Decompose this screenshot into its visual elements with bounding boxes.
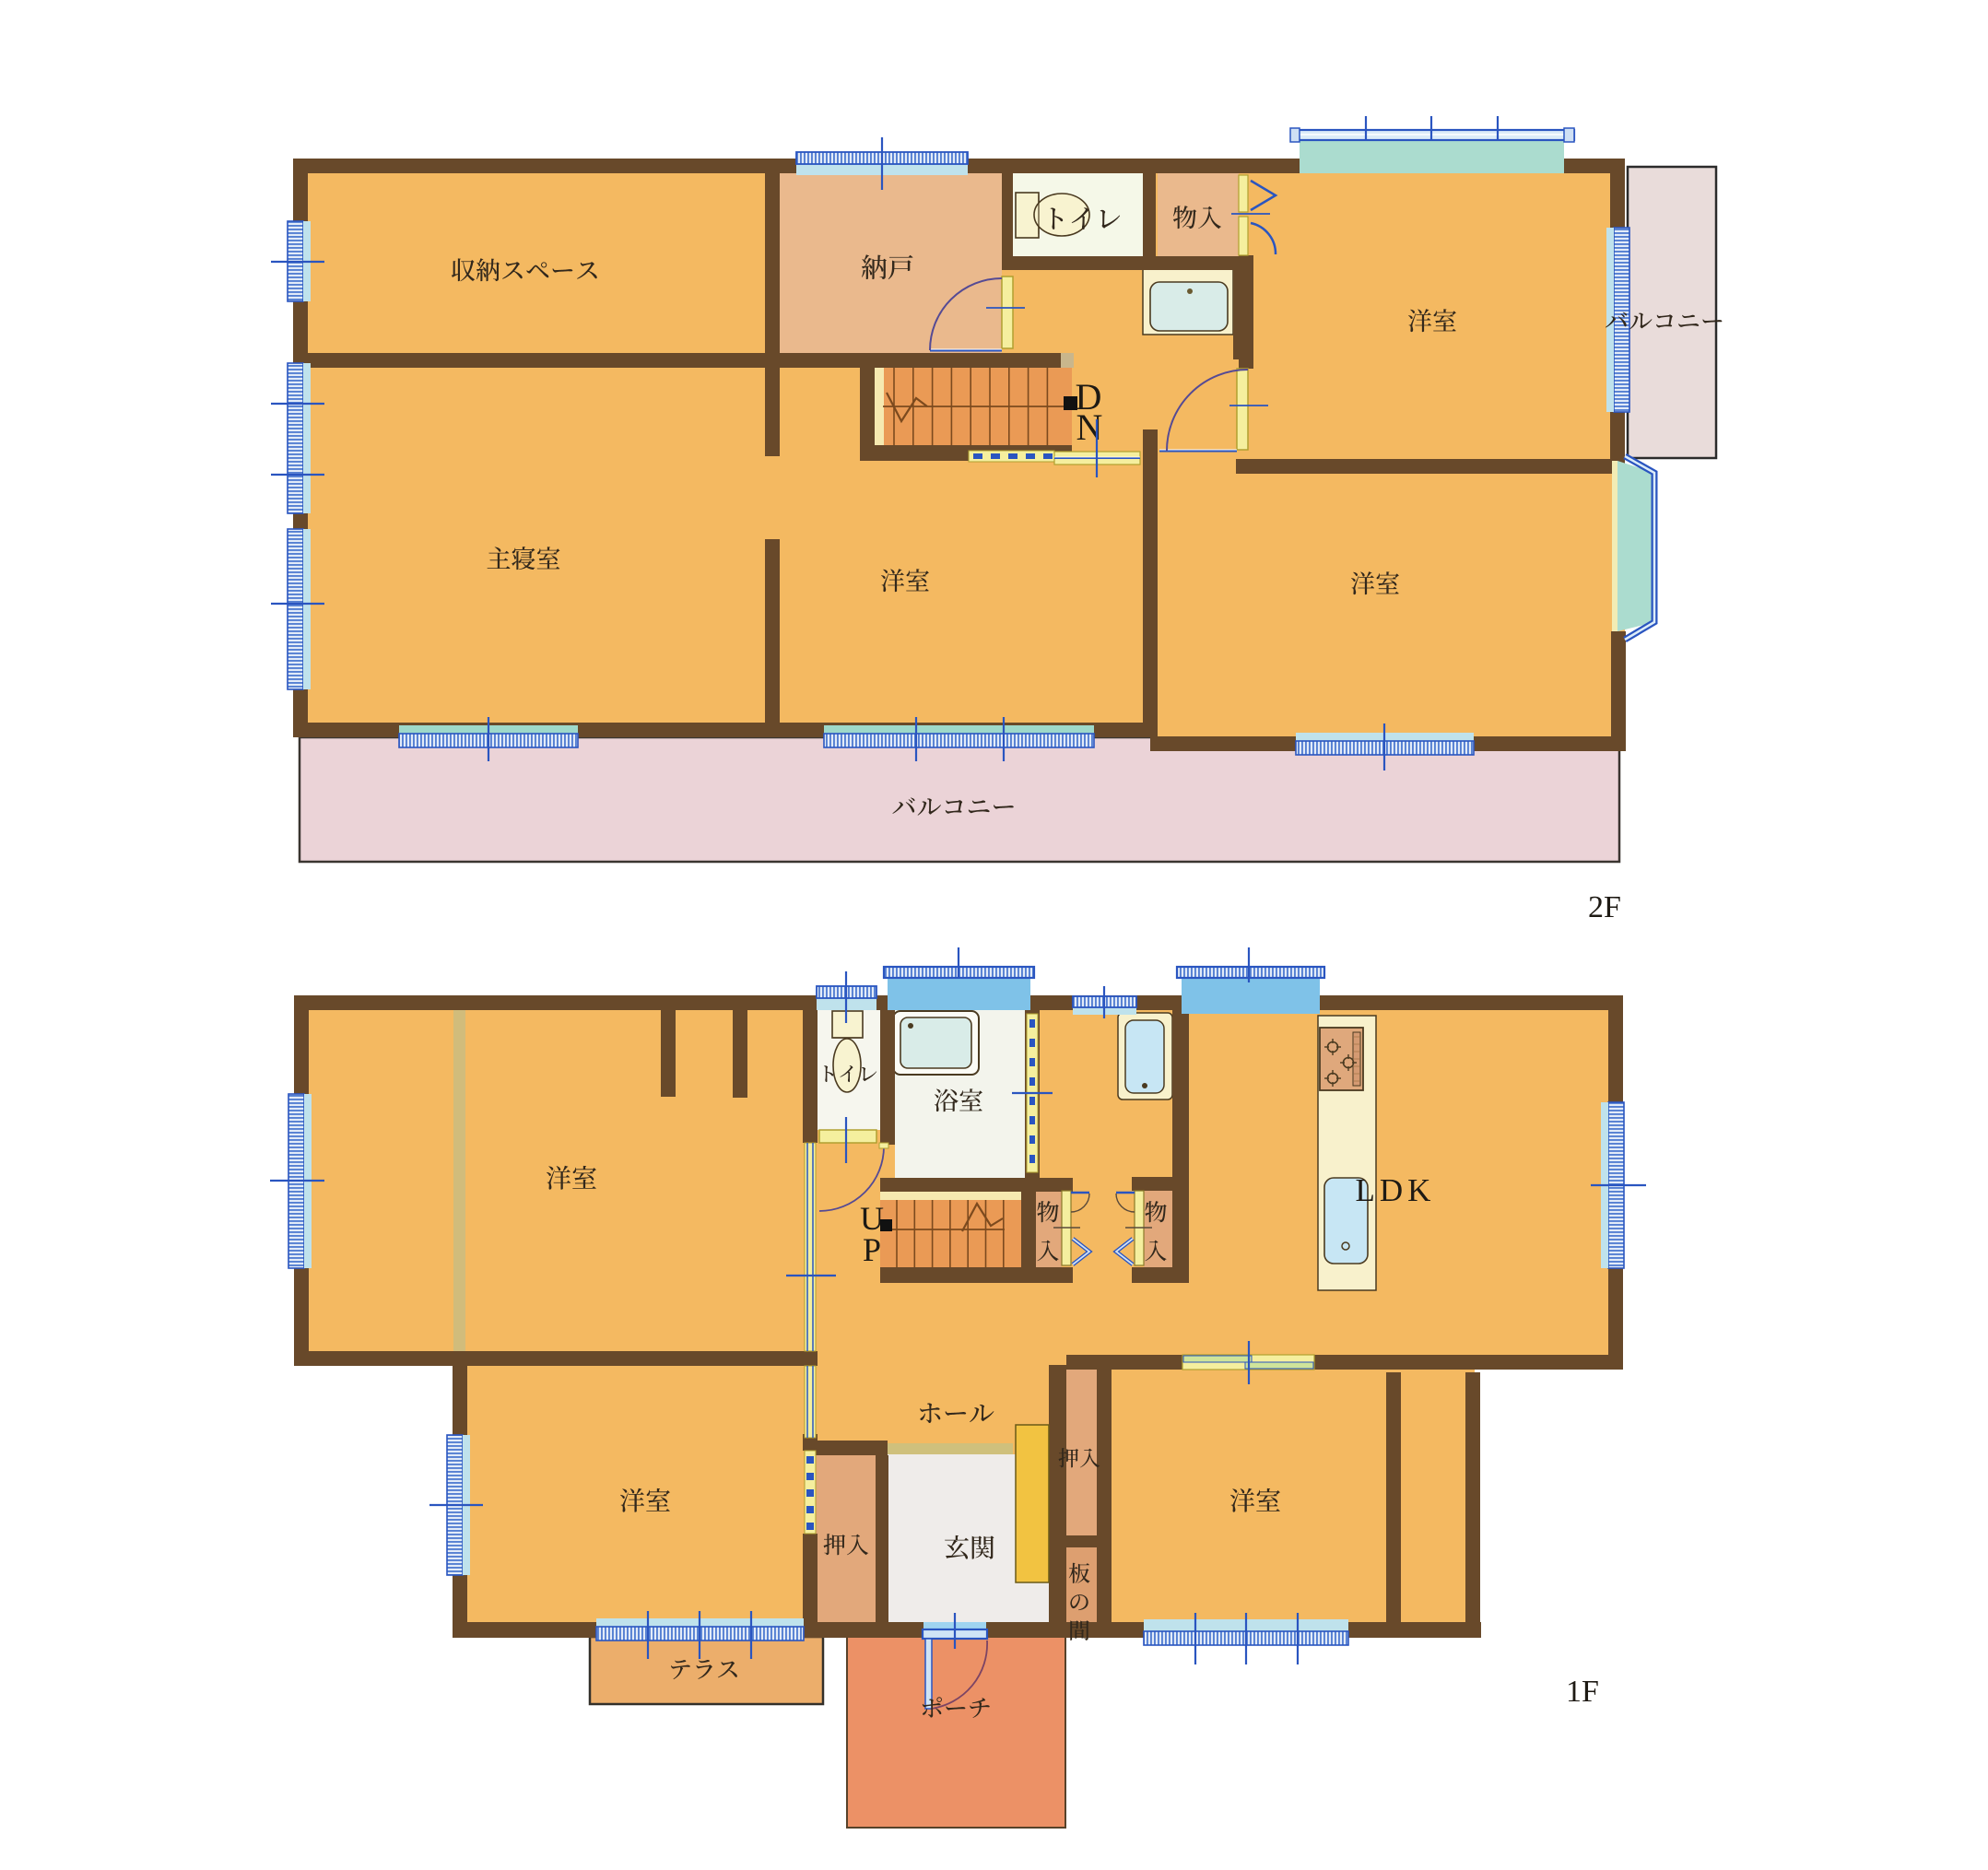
svg-text:2F: 2F xyxy=(1588,890,1621,924)
svg-text:LDK: LDK xyxy=(1356,1172,1436,1208)
svg-text:1F: 1F xyxy=(1566,1675,1599,1709)
svg-text:N: N xyxy=(1076,406,1103,448)
svg-text:P: P xyxy=(863,1231,881,1268)
